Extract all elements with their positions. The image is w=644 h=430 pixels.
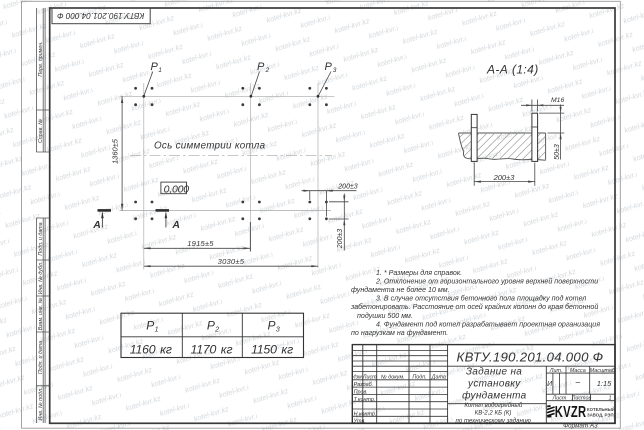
svg-text:забетонировать. Расстояние от: забетонировать. Расстояние от осей крайн…	[350, 303, 598, 311]
svg-text:Инв. № подл.: Инв. № подл.	[38, 388, 44, 421]
svg-text:Подп. и дата: Подп. и дата	[38, 341, 44, 374]
svg-text:1: 1	[609, 396, 612, 402]
svg-text:200±3: 200±3	[493, 173, 516, 182]
svg-text:Лист: Лист	[362, 375, 377, 381]
svg-text:Справ. №: Справ. №	[38, 119, 44, 143]
svg-text:подушки 500 мм.: подушки 500 мм.	[357, 312, 413, 320]
svg-text:Взам. инв. №: Взам. инв. №	[38, 297, 44, 330]
svg-text:Котел водогрейный: Котел водогрейный	[464, 402, 523, 409]
svg-text:А: А	[171, 219, 180, 231]
svg-text:КВТУ.190.201.04.000 Ф: КВТУ.190.201.04.000 Ф	[57, 11, 145, 20]
svg-text:фундамента: фундамента	[462, 389, 527, 401]
svg-text:Ось симметрии котла: Ось симметрии котла	[154, 140, 266, 151]
svg-text:кг: кг	[221, 343, 233, 357]
svg-text:Перв. примен.: Перв. примен.	[38, 41, 44, 76]
svg-text:Пров.: Пров.	[354, 390, 368, 396]
svg-text:кг: кг	[281, 343, 293, 357]
svg-text:2. Отклонение от горизонтально: 2. Отклонение от горизонтального уровня …	[375, 277, 598, 285]
svg-text:1915±5: 1915±5	[187, 239, 214, 248]
svg-text:1160: 1160	[130, 343, 156, 357]
svg-text:А: А	[92, 219, 101, 231]
svg-text:1170: 1170	[190, 343, 216, 357]
svg-text:1360±5: 1360±5	[111, 138, 120, 164]
svg-text:0,000: 0,000	[164, 183, 190, 195]
svg-text:Лит.: Лит.	[549, 368, 563, 374]
svg-text:3: 3	[333, 67, 337, 74]
svg-text:Утв.: Утв.	[353, 419, 366, 425]
svg-text:Дата: Дата	[431, 375, 446, 381]
svg-text:установку: установку	[467, 378, 521, 389]
svg-text:P: P	[267, 318, 275, 332]
svg-text:Задание на: Задание на	[466, 367, 522, 378]
svg-text:P: P	[257, 61, 265, 73]
svg-text:1: 1	[158, 67, 162, 74]
svg-text:кг: кг	[160, 343, 172, 357]
svg-text:–: –	[575, 378, 581, 387]
svg-text:фундамента не более 10 мм.: фундамента не более 10 мм.	[351, 286, 450, 294]
svg-text:P: P	[146, 318, 154, 332]
svg-text:Подп. и дата: Подп. и дата	[38, 222, 44, 255]
svg-text:по нагрузкам на фундамент.: по нагрузкам на фундамент.	[351, 329, 448, 337]
svg-text:200±3: 200±3	[337, 184, 358, 191]
svg-text:№ докум.: № докум.	[381, 375, 405, 381]
svg-text:P: P	[207, 318, 215, 332]
svg-text:Подп.: Подп.	[412, 375, 426, 381]
svg-text:Лист: Лист	[552, 396, 567, 402]
svg-text:2: 2	[214, 327, 219, 334]
svg-text:200±3: 200±3	[337, 229, 344, 250]
svg-text:2: 2	[264, 67, 269, 74]
svg-text:Инв. № дубл.: Инв. № дубл.	[38, 262, 44, 295]
svg-text:Масса: Масса	[570, 368, 586, 374]
svg-text:Листов: Листов	[571, 396, 592, 402]
svg-text:1: 1	[155, 327, 159, 334]
svg-text:Т.контр.: Т.контр.	[354, 397, 376, 403]
svg-text:по техническому заданию: по техническому заданию	[456, 417, 532, 424]
svg-text:КВТУ.190.201.04.000 Ф: КВТУ.190.201.04.000 Ф	[457, 350, 604, 365]
svg-text:3. В случае отсутствия бетонно: 3. В случае отсутствия бетонного пола пл…	[376, 295, 586, 303]
svg-text:4. Фундамент под котел разраба: 4. Фундамент под котел разрабатывает про…	[376, 320, 600, 328]
svg-text:1150: 1150	[251, 343, 277, 357]
svg-text:1. * Размеры для справок.: 1. * Размеры для справок.	[376, 269, 462, 277]
svg-text:50±3: 50±3	[554, 144, 561, 160]
svg-text:КВ-2,2 КБ (К): КВ-2,2 КБ (К)	[475, 410, 512, 417]
svg-text:Формат А3: Формат А3	[563, 423, 598, 430]
svg-text:ЗАВОД, РЭП: ЗАВОД, РЭП	[587, 412, 614, 417]
svg-text:3: 3	[276, 327, 280, 334]
svg-text:Изм.: Изм.	[352, 375, 364, 381]
svg-text:KVZR: KVZR	[555, 402, 587, 421]
svg-text:А-А (1:4): А-А (1:4)	[486, 62, 539, 76]
svg-text:1:15: 1:15	[597, 379, 612, 388]
svg-text:Масштаб: Масштаб	[590, 368, 616, 374]
svg-text:КОТЕЛЬНЫЙ: КОТЕЛЬНЫЙ	[587, 407, 615, 412]
svg-text:Н.контр.: Н.контр.	[354, 411, 377, 417]
svg-text:3030±5: 3030±5	[218, 257, 245, 266]
svg-text:Разраб.: Разраб.	[354, 382, 374, 388]
svg-text:М16: М16	[551, 97, 564, 104]
svg-text:P: P	[325, 61, 333, 73]
